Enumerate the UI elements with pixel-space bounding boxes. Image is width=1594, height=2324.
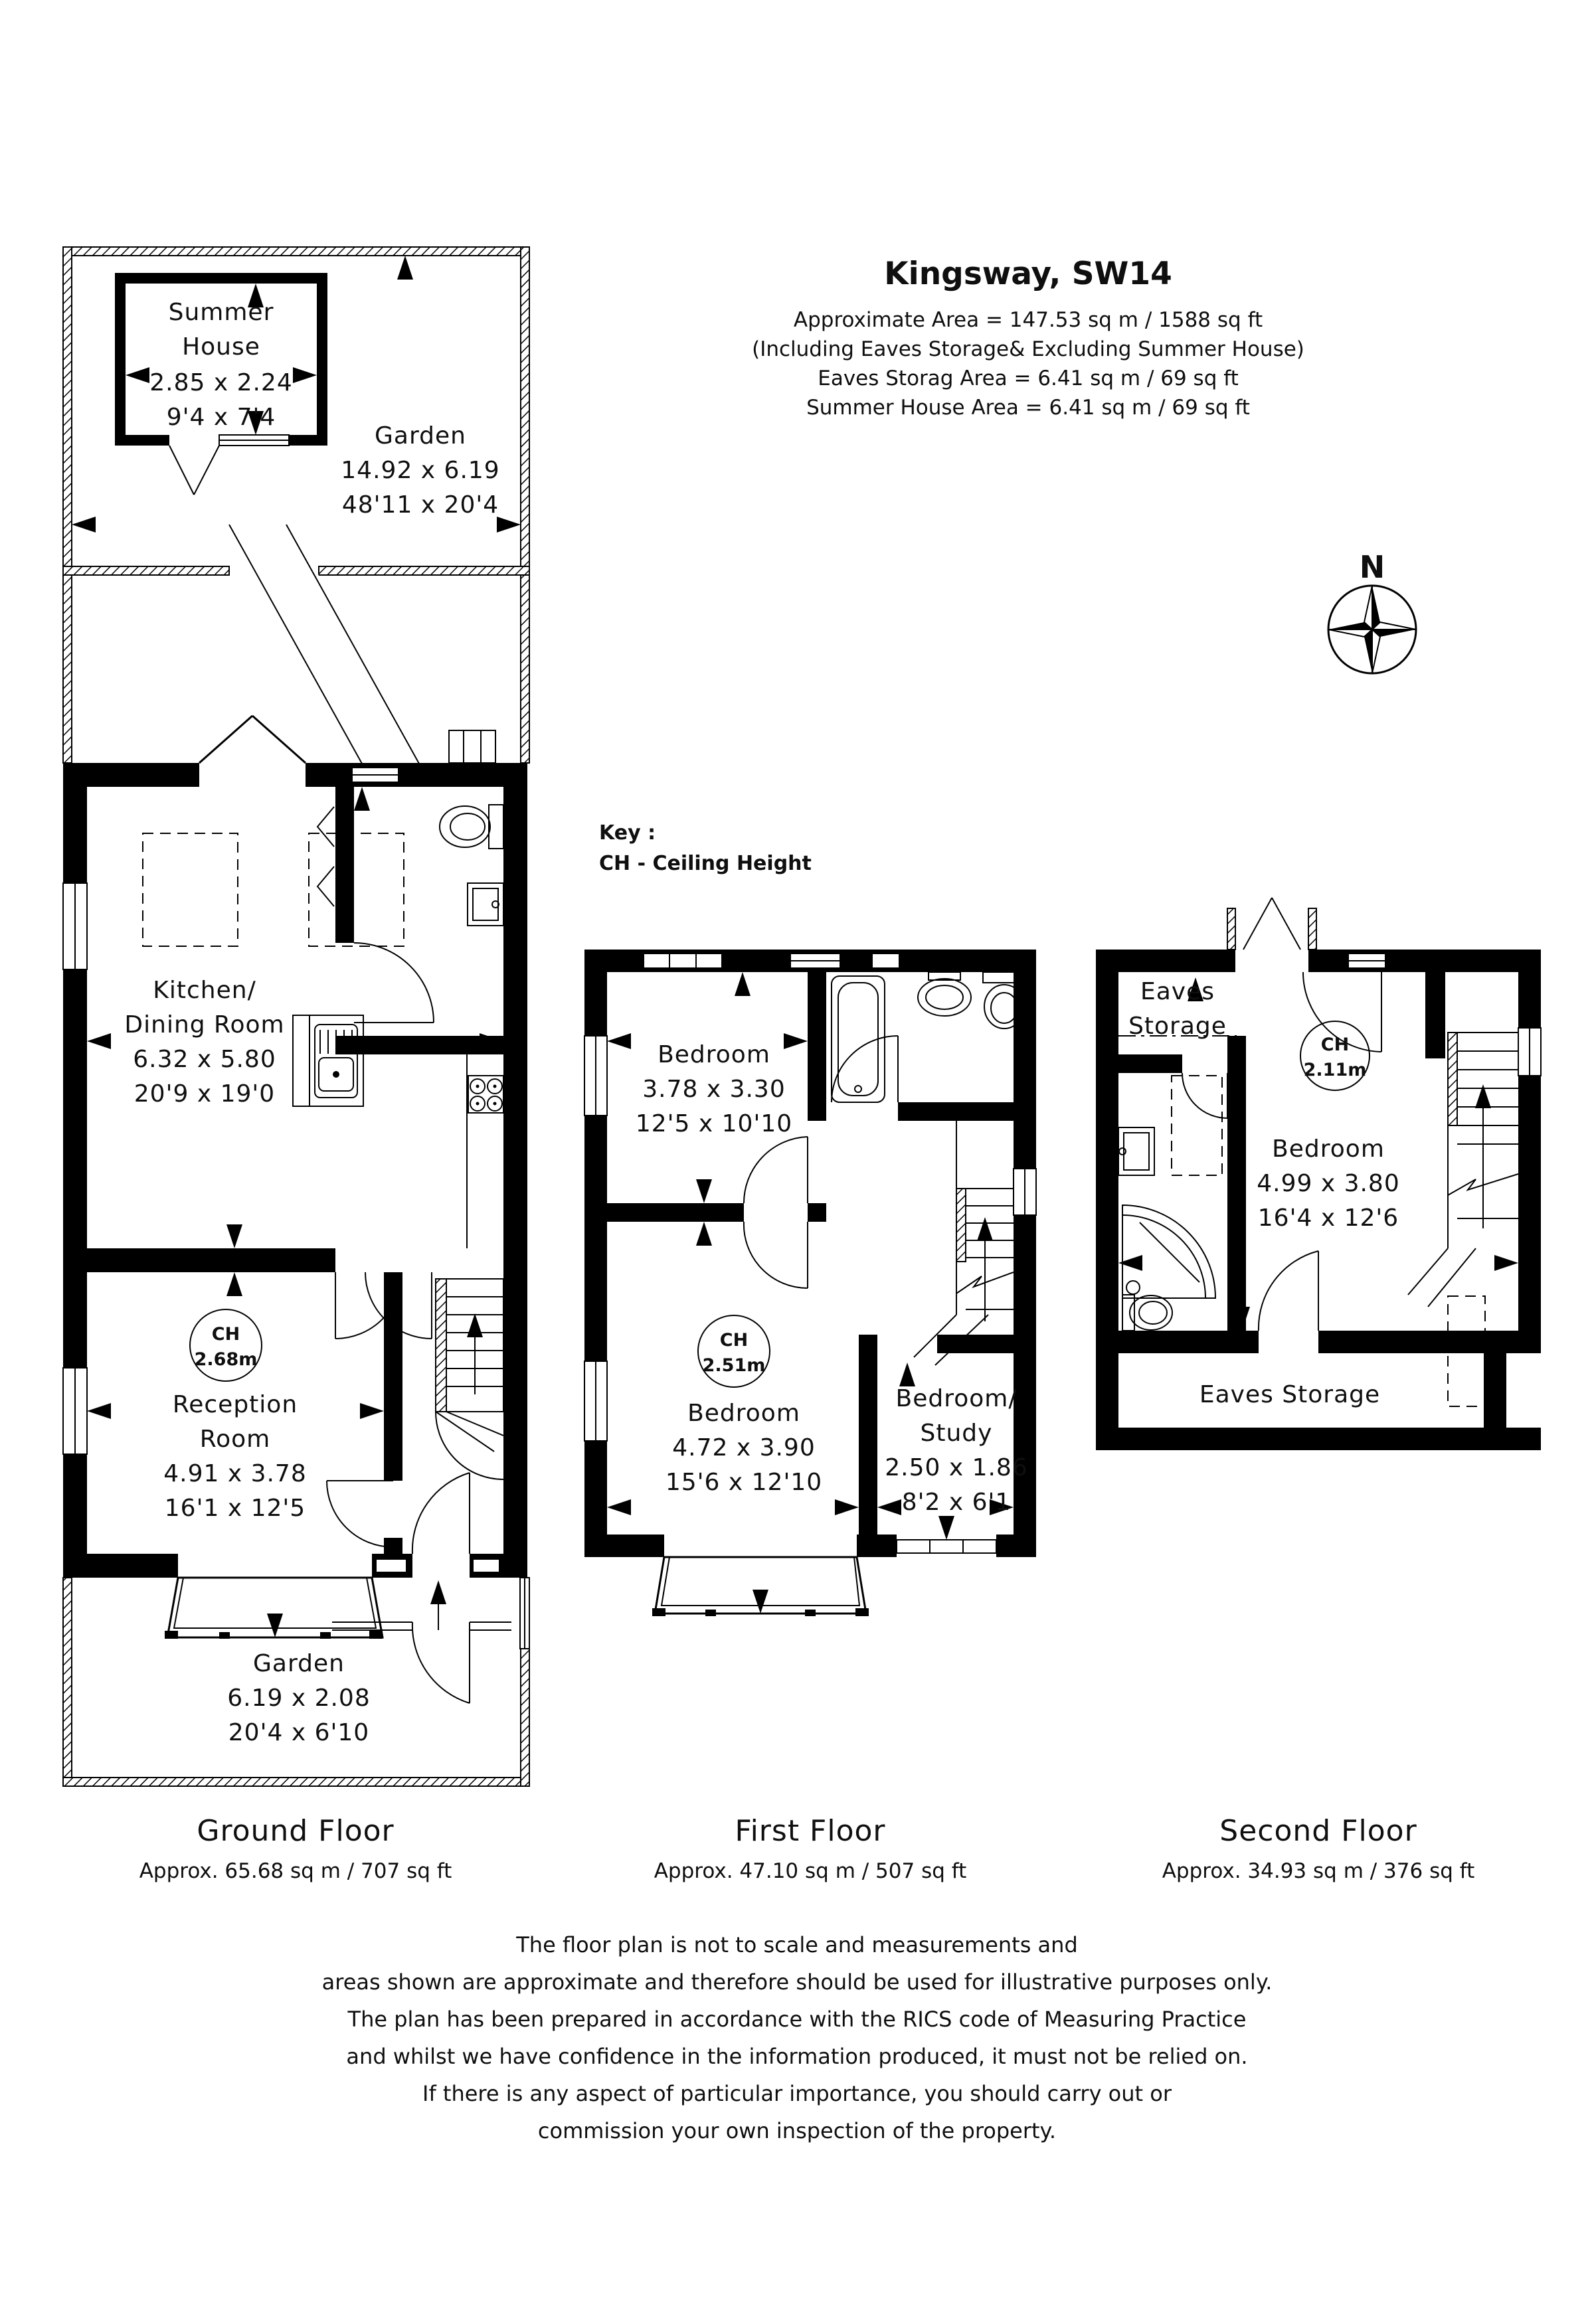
- key-ch-entry: CH - Ceiling Height: [599, 852, 812, 875]
- disclaimer-line: The plan has been prepared in accordance…: [347, 2007, 1247, 2032]
- svg-text:12'5 x 10'10: 12'5 x 10'10: [636, 1110, 792, 1137]
- ground-floor-area: Approx. 65.68 sq m / 707 sq ft: [139, 1859, 452, 1883]
- bedroom-first-top: Bedroom 3.78 x 3.30 12'5 x 10'10: [607, 972, 826, 1288]
- svg-text:16'4 x 12'6: 16'4 x 12'6: [1258, 1204, 1399, 1232]
- sink-icon: [468, 883, 503, 926]
- disclaimer-line: The floor plan is not to scale and measu…: [515, 1932, 1078, 1957]
- eaves-area-line: Eaves Storag Area = 6.41 sq m / 69 sq ft: [818, 367, 1239, 390]
- ceiling-height-badge: CH 2.68m: [190, 1309, 262, 1381]
- floorplan-drawing: Kingsway, SW14 Approximate Area = 147.53…: [0, 0, 1594, 2324]
- ceiling-height-badge: CH 2.11m: [1300, 1021, 1370, 1090]
- svg-text:4.91 x 3.78: 4.91 x 3.78: [163, 1460, 307, 1487]
- disclaimer-line: commission your own inspection of the pr…: [538, 2118, 1056, 2143]
- svg-text:CH: CH: [1321, 1035, 1349, 1055]
- svg-text:Room: Room: [200, 1426, 271, 1453]
- room-label-reception: Reception Room 4.91 x 3.78 16'1 x 12'5: [163, 1391, 307, 1522]
- rear-doors: [199, 716, 252, 763]
- room-label-bedroom-second: Bedroom 4.99 x 3.80 16'4 x 12'6: [1257, 1135, 1400, 1232]
- first-floor-caption: First Floor: [735, 1814, 885, 1848]
- folding-door-icon: [317, 867, 334, 906]
- first-bay-window: [652, 1557, 869, 1616]
- key-legend: Key : CH - Ceiling Height: [599, 821, 812, 875]
- bedroom1-window: [644, 954, 722, 968]
- second-floor-caption: Second Floor: [1219, 1814, 1417, 1848]
- svg-text:3.78 x 3.30: 3.78 x 3.30: [642, 1076, 786, 1103]
- compass-north-label: N: [1360, 549, 1385, 585]
- kitchen-dining-room: Kitchen/ Dining Room 6.32 x 5.80 20'9 x …: [87, 787, 503, 1248]
- bedroom-study: Bedroom/ Study 2.50 x 1.86 8'2 x 6'1: [859, 1335, 1036, 1557]
- svg-text:2.11m: 2.11m: [1304, 1060, 1367, 1080]
- svg-text:Eaves: Eaves: [1140, 978, 1215, 1005]
- disclaimer-line: areas shown are approximate and therefor…: [322, 1969, 1273, 1995]
- svg-text:2.51m: 2.51m: [703, 1355, 766, 1376]
- svg-text:6.32 x 5.80: 6.32 x 5.80: [133, 1046, 276, 1073]
- disclaimer-line: and whilst we have confidence in the inf…: [346, 2044, 1247, 2069]
- room-label-bedroom-f2: Bedroom 4.72 x 3.90 15'6 x 12'10: [665, 1400, 822, 1496]
- second-floor-area: Approx. 34.93 sq m / 376 sq ft: [1162, 1859, 1475, 1883]
- svg-text:4.99 x 3.80: 4.99 x 3.80: [1257, 1170, 1400, 1197]
- svg-text:16'1 x 12'5: 16'1 x 12'5: [165, 1495, 306, 1522]
- reception-room: CH 2.68m Reception Room 4.91 x 3.78 16'1…: [87, 1309, 384, 1522]
- wc-room: [335, 787, 503, 1054]
- room-label-eaves-top: Eaves Storage: [1128, 978, 1227, 1040]
- ground-floor-walls: [63, 716, 527, 1578]
- svg-text:Kitchen/: Kitchen/: [153, 977, 256, 1004]
- front-window-right: [473, 1559, 499, 1572]
- room-label-study: Bedroom/ Study 2.50 x 1.86 8'2 x 6'1: [885, 1385, 1028, 1516]
- svg-text:CH: CH: [720, 1330, 748, 1351]
- summer-house-door: [169, 446, 194, 495]
- svg-text:Bedroom: Bedroom: [1272, 1135, 1385, 1163]
- eaves-line: [1172, 1076, 1222, 1175]
- floorplan-page: Kingsway, SW14 Approximate Area = 147.53…: [0, 0, 1594, 2324]
- compass-icon: N: [1328, 549, 1416, 673]
- svg-text:Garden: Garden: [375, 422, 466, 450]
- svg-text:6.19 x 2.08: 6.19 x 2.08: [227, 1685, 371, 1712]
- basin-icon: [918, 972, 971, 1016]
- shower-icon: [1122, 1205, 1215, 1298]
- key-heading: Key :: [599, 821, 656, 845]
- island-sink-icon: [293, 1015, 363, 1106]
- bedroom-first-bottom: CH 2.51m Bedroom 4.72 x 3.90 15'6 x 12'1…: [607, 1315, 859, 1515]
- skylight: [309, 833, 404, 946]
- svg-text:20'9 x 19'0: 20'9 x 19'0: [134, 1080, 275, 1108]
- svg-text:2.50 x 1.86: 2.50 x 1.86: [885, 1454, 1028, 1481]
- svg-text:House: House: [182, 333, 260, 361]
- svg-text:14.92 x 6.19: 14.92 x 6.19: [341, 457, 499, 484]
- disclaimer: The floor plan is not to scale and measu…: [322, 1932, 1273, 2143]
- svg-text:Reception: Reception: [173, 1391, 298, 1418]
- bathroom: [808, 972, 1036, 1121]
- staircase-ground: [436, 1279, 503, 1479]
- room-label-bedroom-f1: Bedroom 3.78 x 3.30 12'5 x 10'10: [636, 1041, 792, 1137]
- header: Kingsway, SW14 Approximate Area = 147.53…: [752, 256, 1304, 420]
- room-label-eaves-bottom: Eaves Storage: [1199, 1381, 1380, 1408]
- svg-text:Dining Room: Dining Room: [124, 1011, 284, 1038]
- second-floor-plan: Eaves Storage: [1096, 898, 1541, 1450]
- summerhouse-area-line: Summer House Area = 6.41 sq m / 69 sq ft: [806, 396, 1250, 420]
- floor-captions: Ground Floor Approx. 65.68 sq m / 707 sq…: [139, 1814, 1475, 1883]
- toilet-icon: [440, 805, 503, 849]
- including-line: (Including Eaves Storage& Excluding Summ…: [752, 337, 1304, 361]
- svg-text:Bedroom/: Bedroom/: [896, 1385, 1018, 1412]
- garden-break: [226, 522, 429, 778]
- ground-floor-caption: Ground Floor: [197, 1814, 394, 1848]
- svg-text:Garden: Garden: [253, 1650, 345, 1677]
- svg-text:CH: CH: [212, 1324, 240, 1345]
- svg-text:Study: Study: [921, 1420, 993, 1447]
- skylight: [143, 833, 238, 946]
- disclaimer-line: If there is any aspect of particular imp…: [422, 2081, 1172, 2106]
- svg-text:Bedroom: Bedroom: [687, 1400, 800, 1427]
- bathroom-window-2: [872, 954, 899, 968]
- svg-text:4.72 x 3.90: 4.72 x 3.90: [672, 1434, 816, 1461]
- svg-text:2.85 x 2.24: 2.85 x 2.24: [149, 369, 293, 396]
- svg-text:15'6 x 12'10: 15'6 x 12'10: [665, 1469, 822, 1496]
- rear-garden: Garden 14.92 x 6.19 48'11 x 20'4: [63, 247, 529, 778]
- dormer-doors: [1243, 898, 1272, 950]
- staircase-first: [914, 1121, 1014, 1365]
- basin-icon: [1118, 1127, 1154, 1175]
- room-label-summer-house: Summer House 2.85 x 2.24 9'4 x 7'4: [149, 299, 293, 431]
- front-entrance: [332, 1473, 529, 1703]
- study-window: [897, 1540, 996, 1553]
- svg-text:9'4 x 7'4: 9'4 x 7'4: [167, 404, 276, 431]
- ground-floor-plan: Garden 14.92 x 6.19 48'11 x 20'4 Summer …: [63, 247, 529, 1786]
- chimney: [449, 730, 495, 763]
- first-floor-plan: Bedroom 3.78 x 3.30 12'5 x 10'10: [584, 950, 1036, 1616]
- hob-icon: [468, 1076, 503, 1113]
- folding-door-icon: [317, 807, 334, 847]
- approx-area-line: Approximate Area = 147.53 sq m / 1588 sq…: [794, 308, 1263, 332]
- svg-text:20'4 x 6'10: 20'4 x 6'10: [228, 1719, 369, 1746]
- front-garden: Garden 6.19 x 2.08 20'4 x 6'10: [63, 1578, 529, 1786]
- room-label-front-garden: Garden 6.19 x 2.08 20'4 x 6'10: [227, 1650, 371, 1746]
- svg-text:48'11 x 20'4: 48'11 x 20'4: [342, 491, 499, 519]
- front-window-left: [376, 1559, 406, 1572]
- room-label-kitchen: Kitchen/ Dining Room 6.32 x 5.80 20'9 x …: [124, 977, 284, 1108]
- kitchen-reception-divider: [87, 1224, 432, 1339]
- svg-text:Bedroom: Bedroom: [658, 1041, 770, 1068]
- page-title: Kingsway, SW14: [884, 256, 1172, 292]
- ceiling-height-badge: CH 2.51m: [698, 1315, 770, 1387]
- svg-text:8'2 x 6'1: 8'2 x 6'1: [902, 1489, 1012, 1516]
- svg-text:Storage: Storage: [1128, 1013, 1227, 1040]
- svg-text:2.68m: 2.68m: [195, 1349, 258, 1370]
- toilet-icon: [1122, 1295, 1172, 1331]
- room-label-rear-garden: Garden 14.92 x 6.19 48'11 x 20'4: [341, 422, 499, 519]
- first-floor-area: Approx. 47.10 sq m / 507 sq ft: [654, 1859, 967, 1883]
- summer-house: Summer House 2.85 x 2.24 9'4 x 7'4: [115, 273, 327, 495]
- svg-text:Summer: Summer: [169, 299, 274, 326]
